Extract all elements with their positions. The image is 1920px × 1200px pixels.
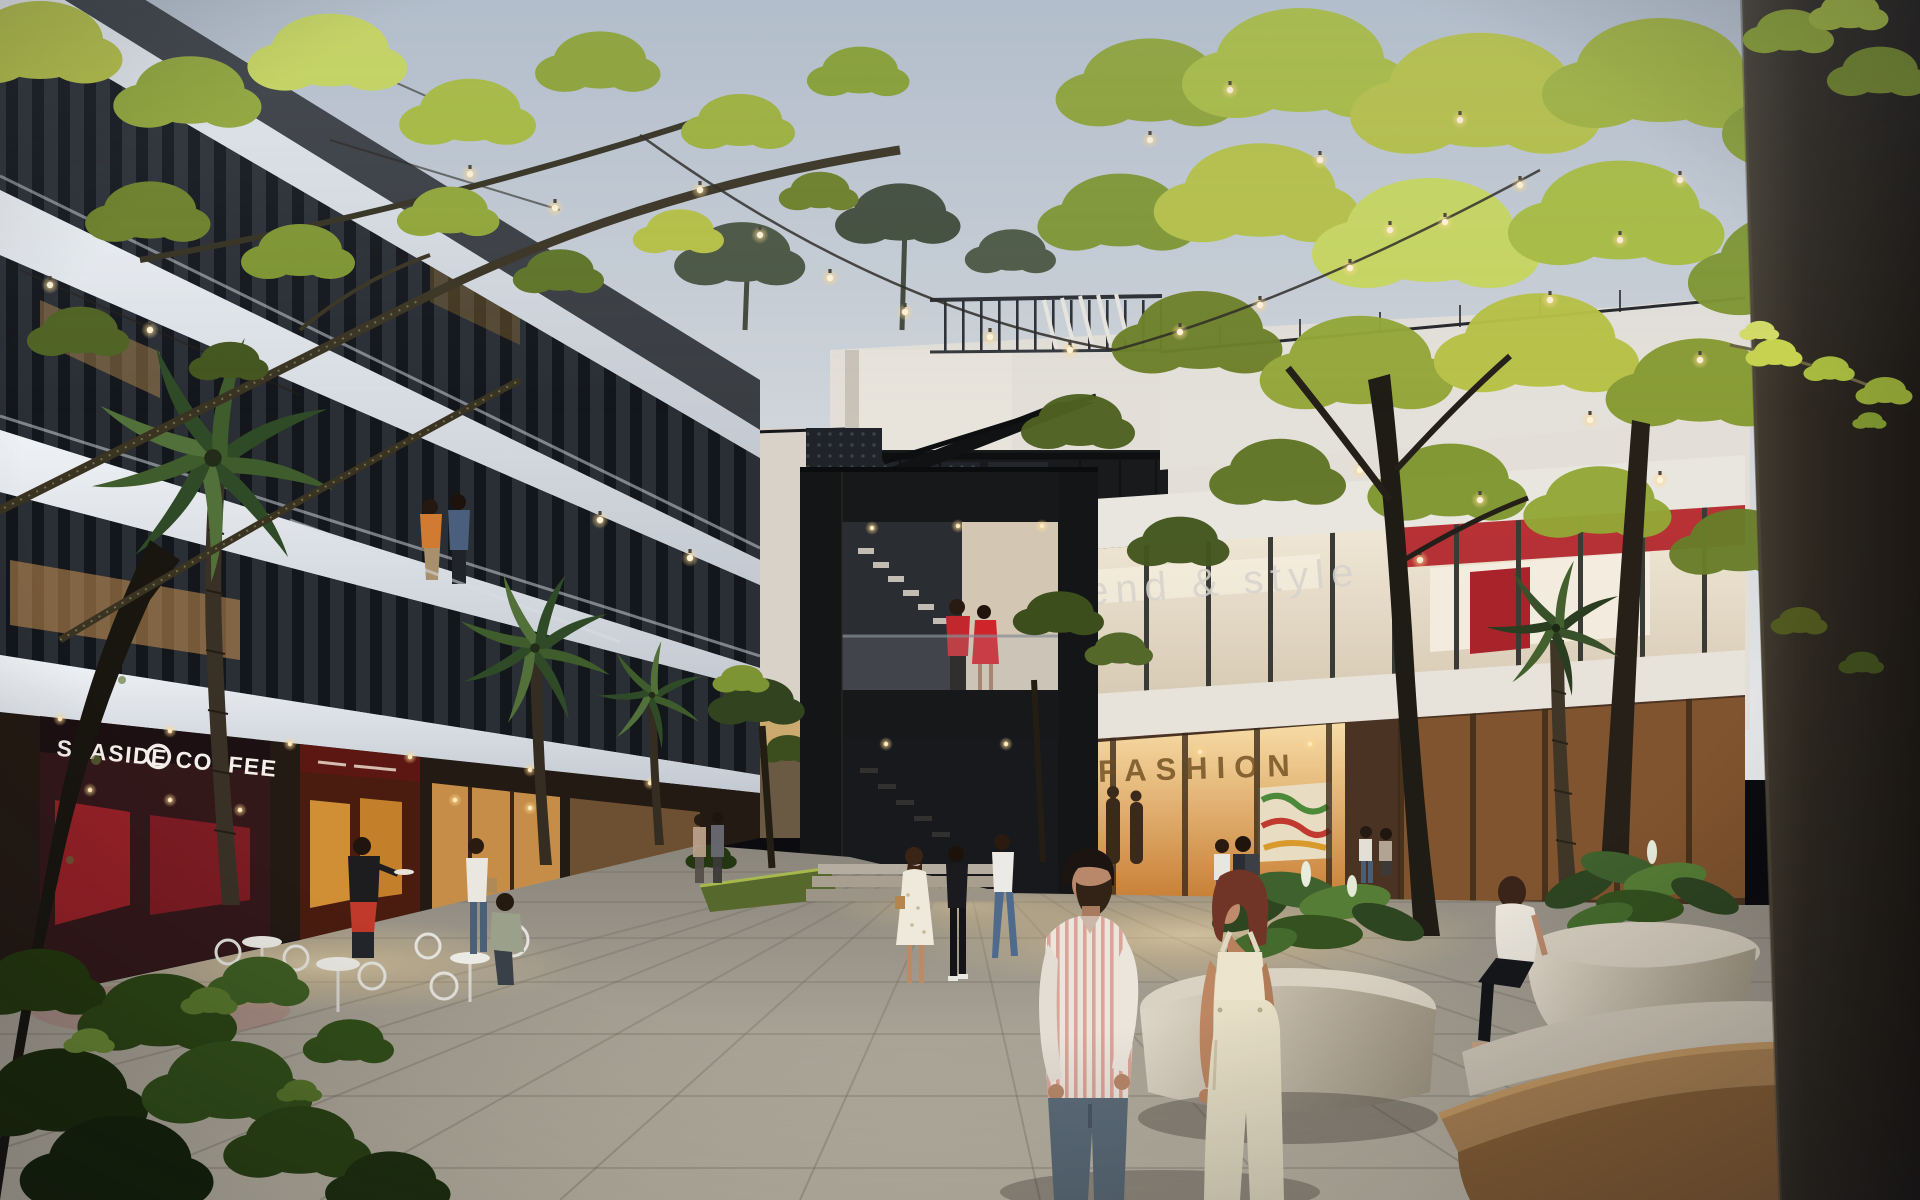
- plaza-rendering: trend & style FASHION: [0, 0, 1920, 1200]
- scene-canvas: trend & style FASHION: [0, 0, 1920, 1200]
- vignette: [0, 0, 1920, 1200]
